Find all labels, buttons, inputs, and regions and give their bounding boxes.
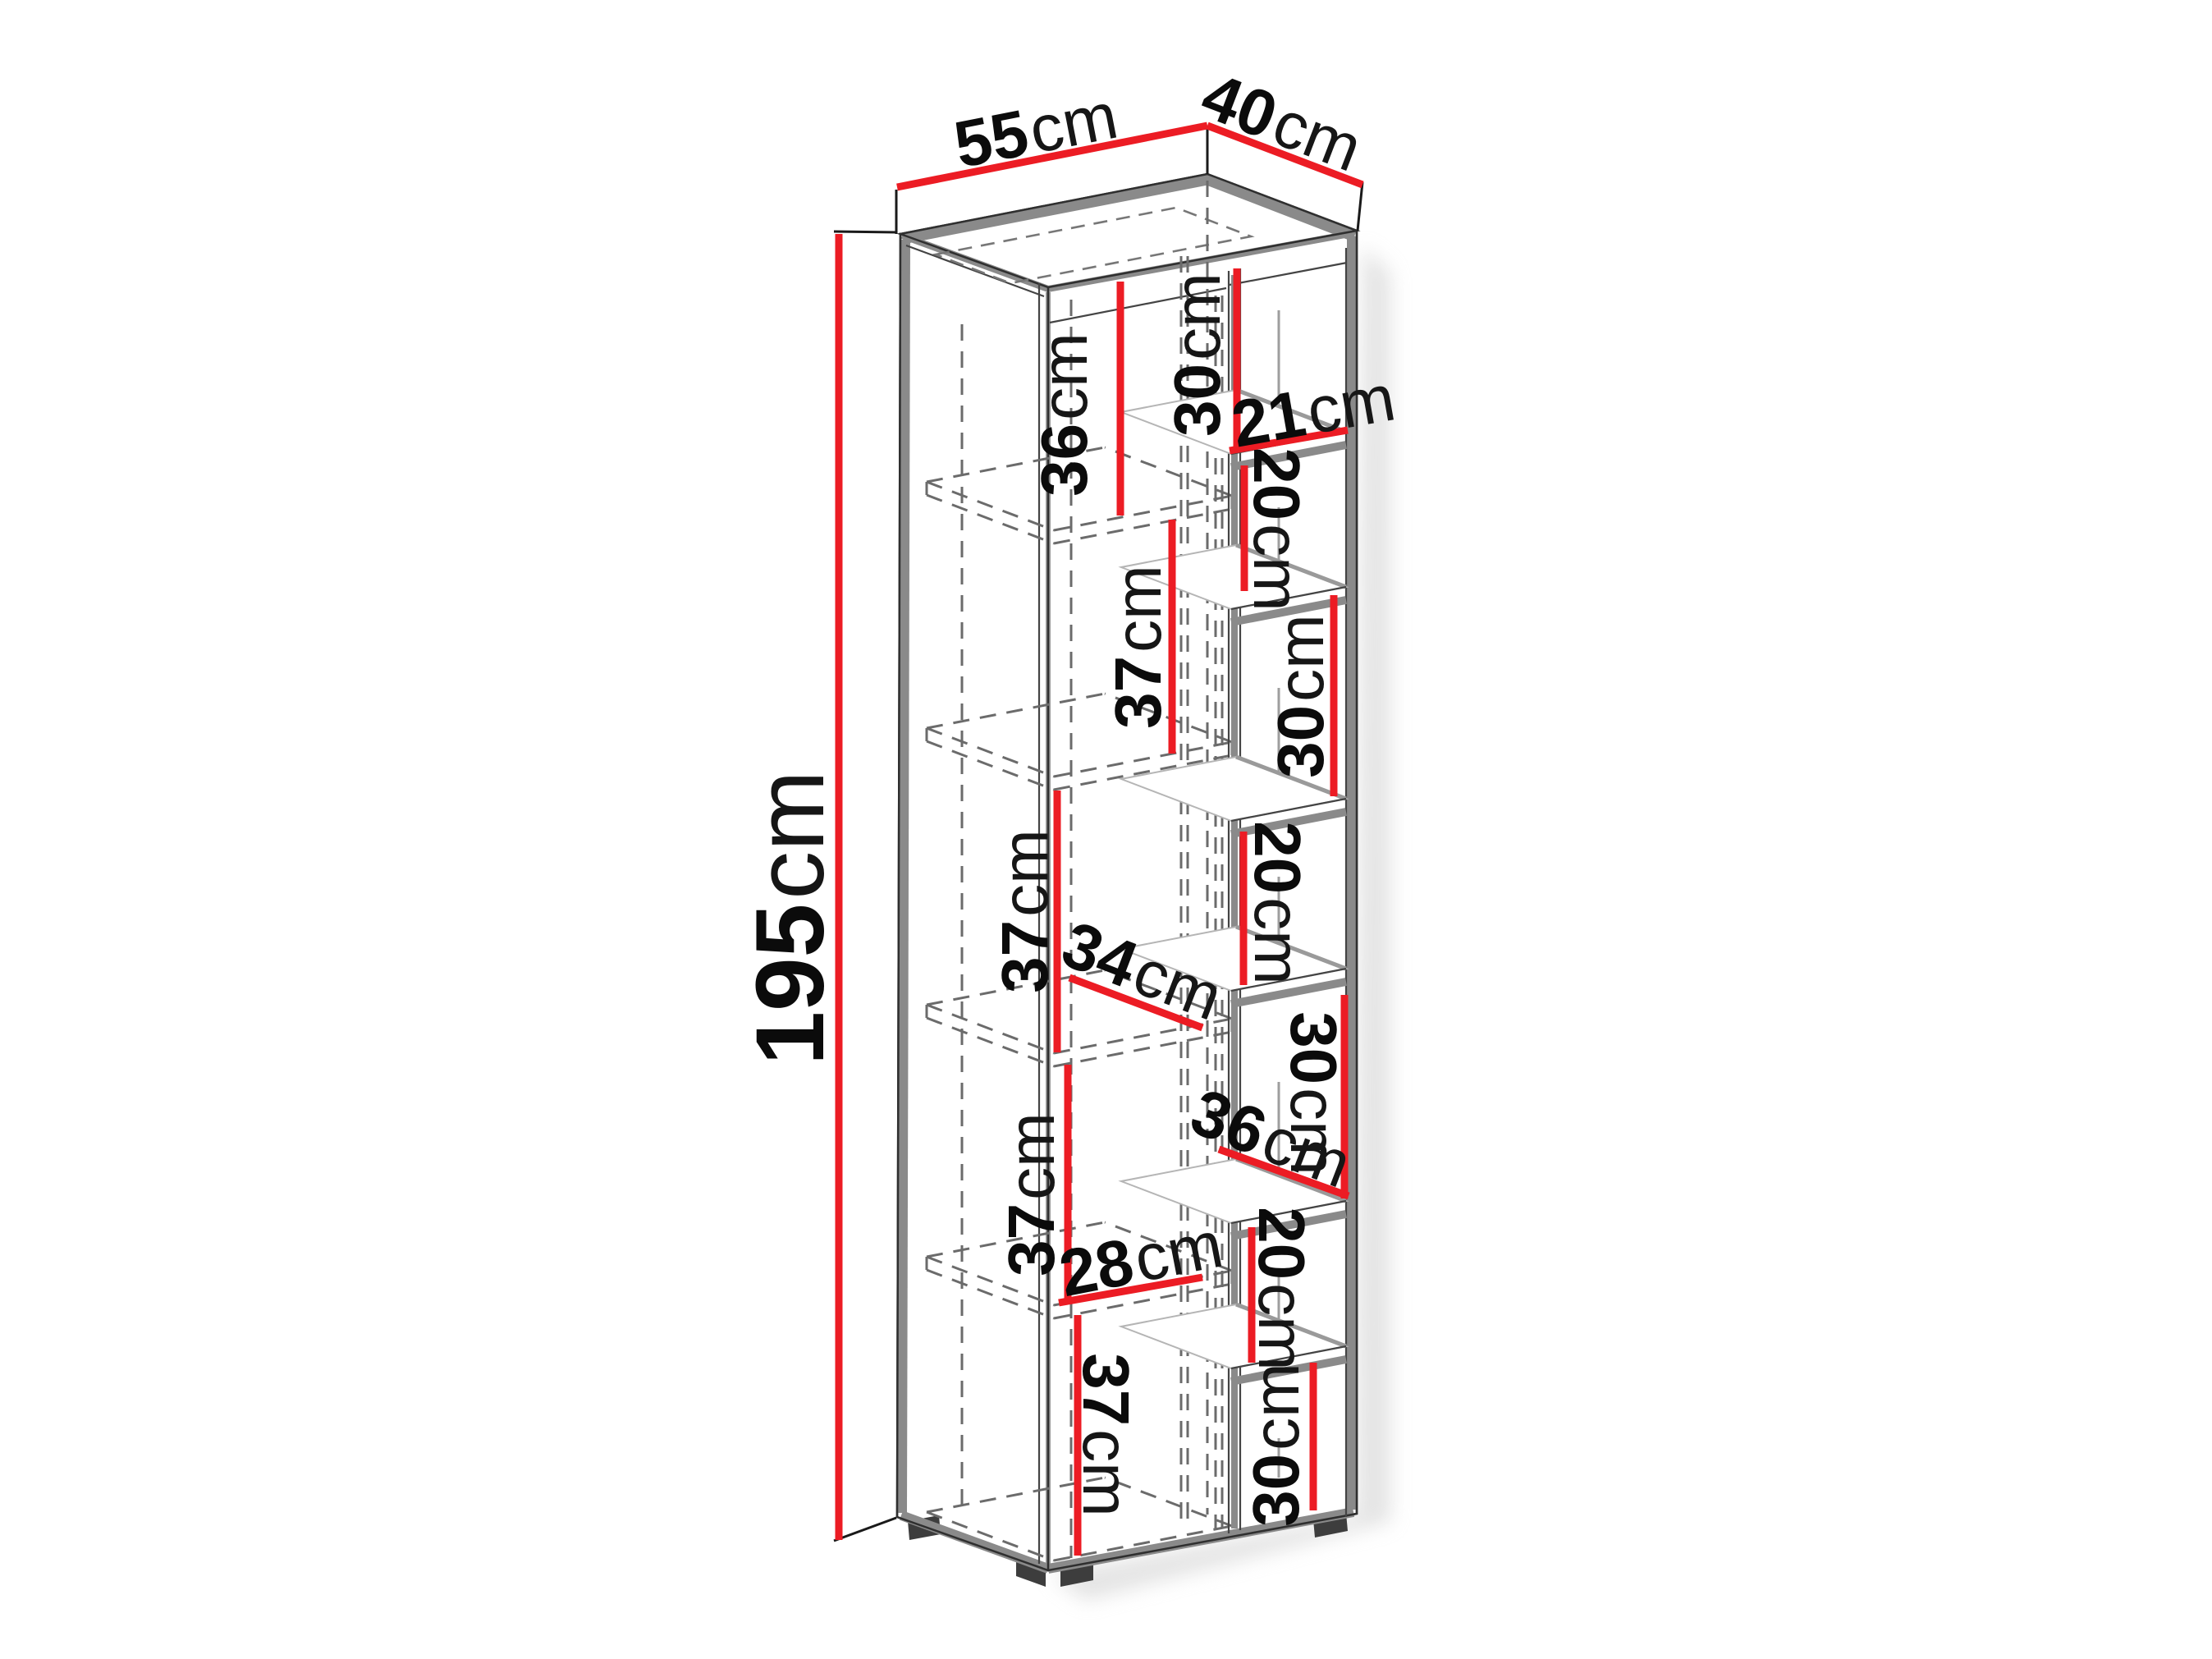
dim-label-height-195: 195cm [736, 770, 845, 1065]
dim-label-right-20b: 20cm [1242, 821, 1315, 985]
dim-label-right-30a: 30cm [1161, 273, 1234, 437]
dim-label-right-20a: 20cm [1241, 447, 1314, 612]
dim-label-left-37d: 37cm [1070, 1353, 1143, 1517]
dimension-diagram: 55cm 40cm 195cm 36cm 37cm 37cm 34cm 37cm… [0, 0, 2212, 1659]
dim-label-right-30b: 30cm [1264, 614, 1337, 778]
dim-label-right-30d: 30cm [1239, 1363, 1312, 1527]
dim-label-left-37b: 37cm [988, 829, 1061, 993]
dim-label-left-36: 36cm [1028, 332, 1101, 497]
dim-label-right-20c: 20cm [1246, 1207, 1319, 1371]
dim-label-depth-40: 40cm [1193, 58, 1372, 186]
dim-label-width-55: 55cm [949, 78, 1124, 181]
dim-label-left-37a: 37cm [1101, 565, 1175, 729]
